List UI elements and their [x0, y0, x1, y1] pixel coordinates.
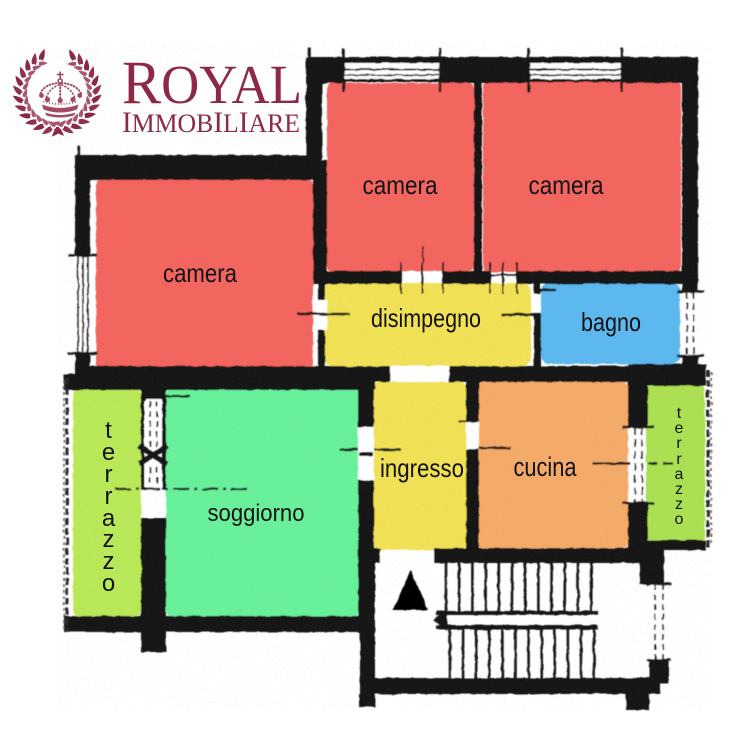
svg-text:camera: camera — [529, 170, 604, 200]
svg-text:bagno: bagno — [581, 307, 641, 337]
svg-text:ROYAL: ROYAL — [122, 50, 302, 117]
svg-text:soggiorno: soggiorno — [208, 500, 305, 527]
svg-text:cucina: cucina — [514, 452, 578, 482]
svg-text:IMMOBILIARE: IMMOBILIARE — [122, 106, 300, 139]
svg-text:ingresso: ingresso — [380, 453, 464, 483]
svg-text:camera: camera — [163, 258, 237, 288]
svg-text:o: o — [675, 511, 684, 528]
svg-text:disimpegno: disimpegno — [371, 303, 481, 333]
svg-text:camera: camera — [363, 170, 438, 200]
svg-text:r: r — [676, 435, 682, 452]
svg-text:o: o — [102, 570, 115, 597]
